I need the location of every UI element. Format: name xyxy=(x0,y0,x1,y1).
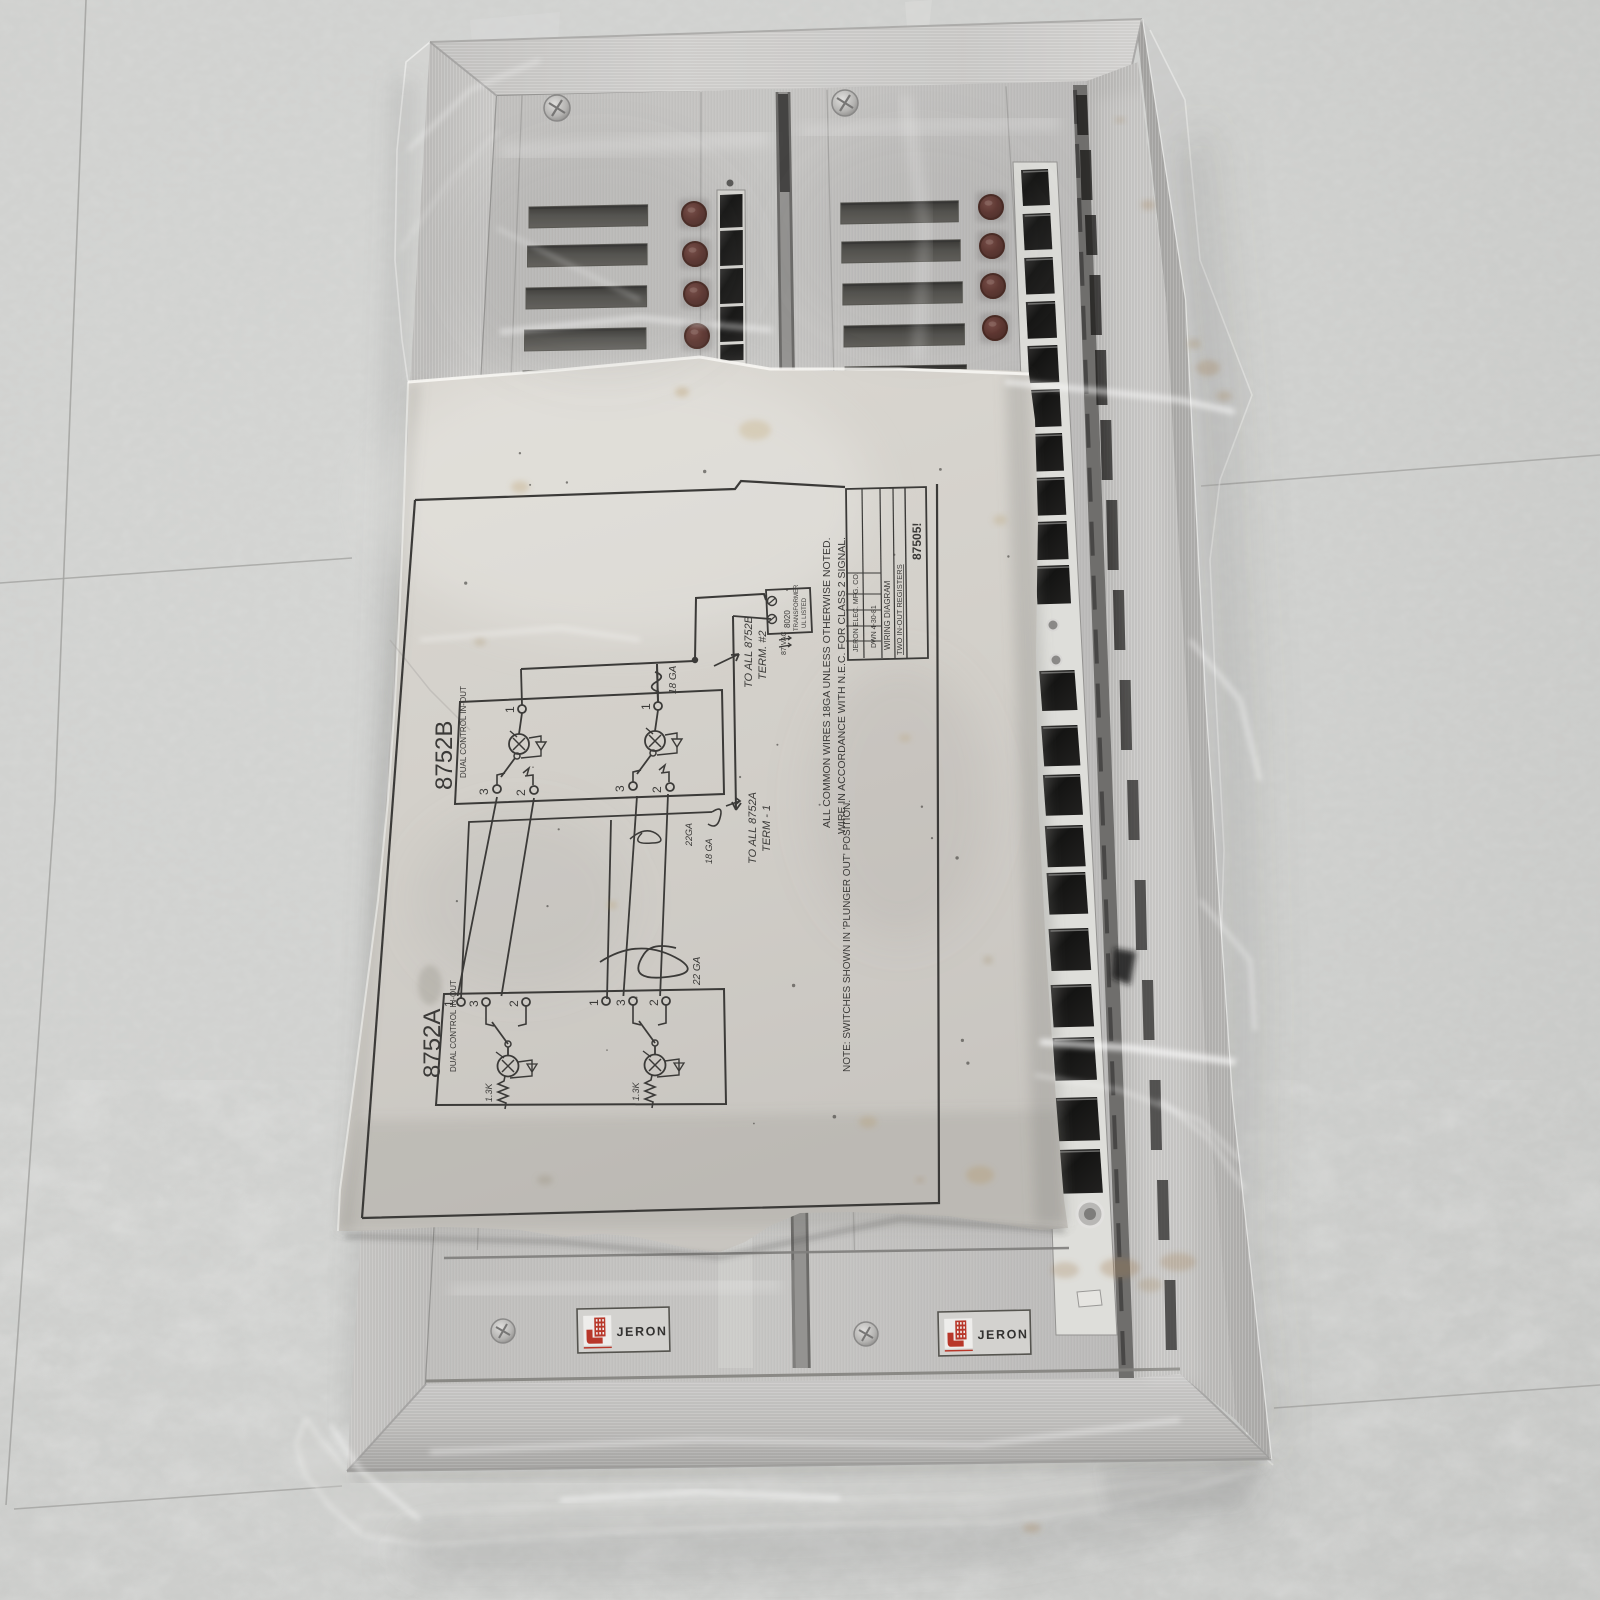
svg-text:8020: 8020 xyxy=(783,610,792,628)
svg-text:1.3K: 1.3K xyxy=(484,1082,494,1102)
svg-text:TWO IN-OUT REGISTERS: TWO IN-OUT REGISTERS xyxy=(895,564,904,655)
svg-text:1: 1 xyxy=(639,703,653,710)
svg-text:1: 1 xyxy=(503,706,517,713)
svg-text:3: 3 xyxy=(477,788,491,795)
svg-text:3: 3 xyxy=(613,785,627,792)
svg-text:TERM. #2: TERM. #2 xyxy=(757,630,769,680)
svg-text:3: 3 xyxy=(467,1000,481,1007)
svg-text:UL LISTED: UL LISTED xyxy=(802,597,808,628)
svg-text:18 GA: 18 GA xyxy=(704,838,714,864)
svg-text:NOTE: SWITCHES SHOWN IN 'PLUNG: NOTE: SWITCHES SHOWN IN 'PLUNGER OUT' PO… xyxy=(842,800,853,1072)
svg-text:TRANSFORMER: TRANSFORMER xyxy=(794,584,800,631)
svg-text:TERM - 1: TERM - 1 xyxy=(761,805,773,852)
svg-text:18 GA: 18 GA xyxy=(668,665,679,694)
svg-text:1: 1 xyxy=(442,1000,456,1007)
svg-text:22GA: 22GA xyxy=(684,823,694,847)
svg-text:3: 3 xyxy=(614,999,628,1006)
svg-text:2: 2 xyxy=(514,789,528,796)
svg-text:8752B: 8752B xyxy=(431,721,458,790)
svg-text:2: 2 xyxy=(647,999,661,1006)
svg-text:DWN 4-30-81: DWN 4-30-81 xyxy=(871,605,878,648)
svg-text:JERON: JERON xyxy=(616,1324,667,1339)
svg-text:1: 1 xyxy=(587,999,601,1006)
svg-text:1.3K: 1.3K xyxy=(631,1081,641,1101)
svg-text:TO ALL 8752B: TO ALL 8752B xyxy=(743,616,755,688)
svg-text:2: 2 xyxy=(650,786,664,793)
svg-text:87 VAC: 87 VAC xyxy=(781,631,788,655)
svg-text:DUAL CONTROL IN-OUT: DUAL CONTROL IN-OUT xyxy=(459,686,468,778)
svg-text:22 GA: 22 GA xyxy=(692,956,703,986)
svg-text:2: 2 xyxy=(507,1000,521,1007)
svg-text:WIRE IN ACCORDANCE WITH N.E.C.: WIRE IN ACCORDANCE WITH N.E.C. FOR CLASS… xyxy=(836,537,848,834)
svg-text:87505!: 87505! xyxy=(910,523,924,560)
svg-text:JERON ELEC. MFG. CO.: JERON ELEC. MFG. CO. xyxy=(853,572,860,652)
svg-text:TO ALL 8752A: TO ALL 8752A xyxy=(747,792,759,864)
svg-text:WIRING DIAGRAM: WIRING DIAGRAM xyxy=(883,580,892,650)
svg-text:ALL COMMON WIRES 18GA UNLESS O: ALL COMMON WIRES 18GA UNLESS OTHERWISE N… xyxy=(821,537,833,828)
svg-text:JERON: JERON xyxy=(977,1327,1028,1342)
